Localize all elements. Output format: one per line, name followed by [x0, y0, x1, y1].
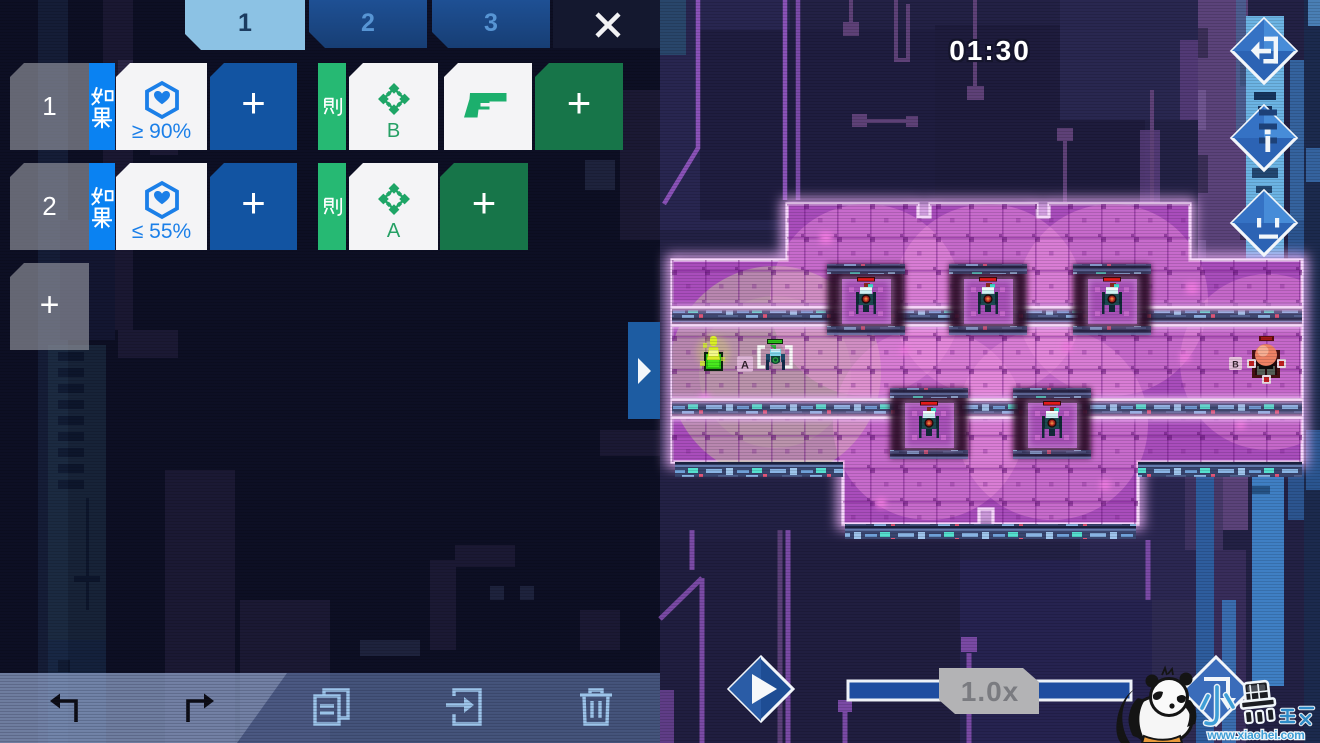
- svg-text:1.0x: 1.0x: [961, 676, 1020, 707]
- svg-text:www.xiaohei.com: www.xiaohei.com: [1206, 728, 1304, 742]
